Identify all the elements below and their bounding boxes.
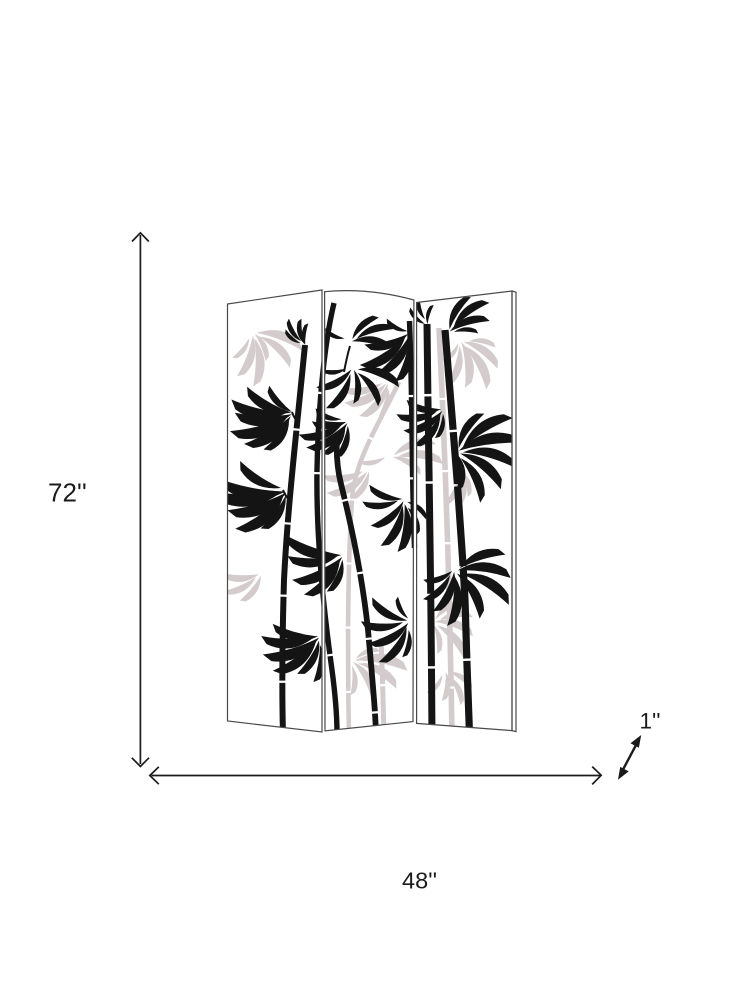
svg-text:48'': 48'' <box>402 868 437 894</box>
svg-text:1'': 1'' <box>640 709 661 734</box>
svg-text:72'': 72'' <box>48 478 87 508</box>
